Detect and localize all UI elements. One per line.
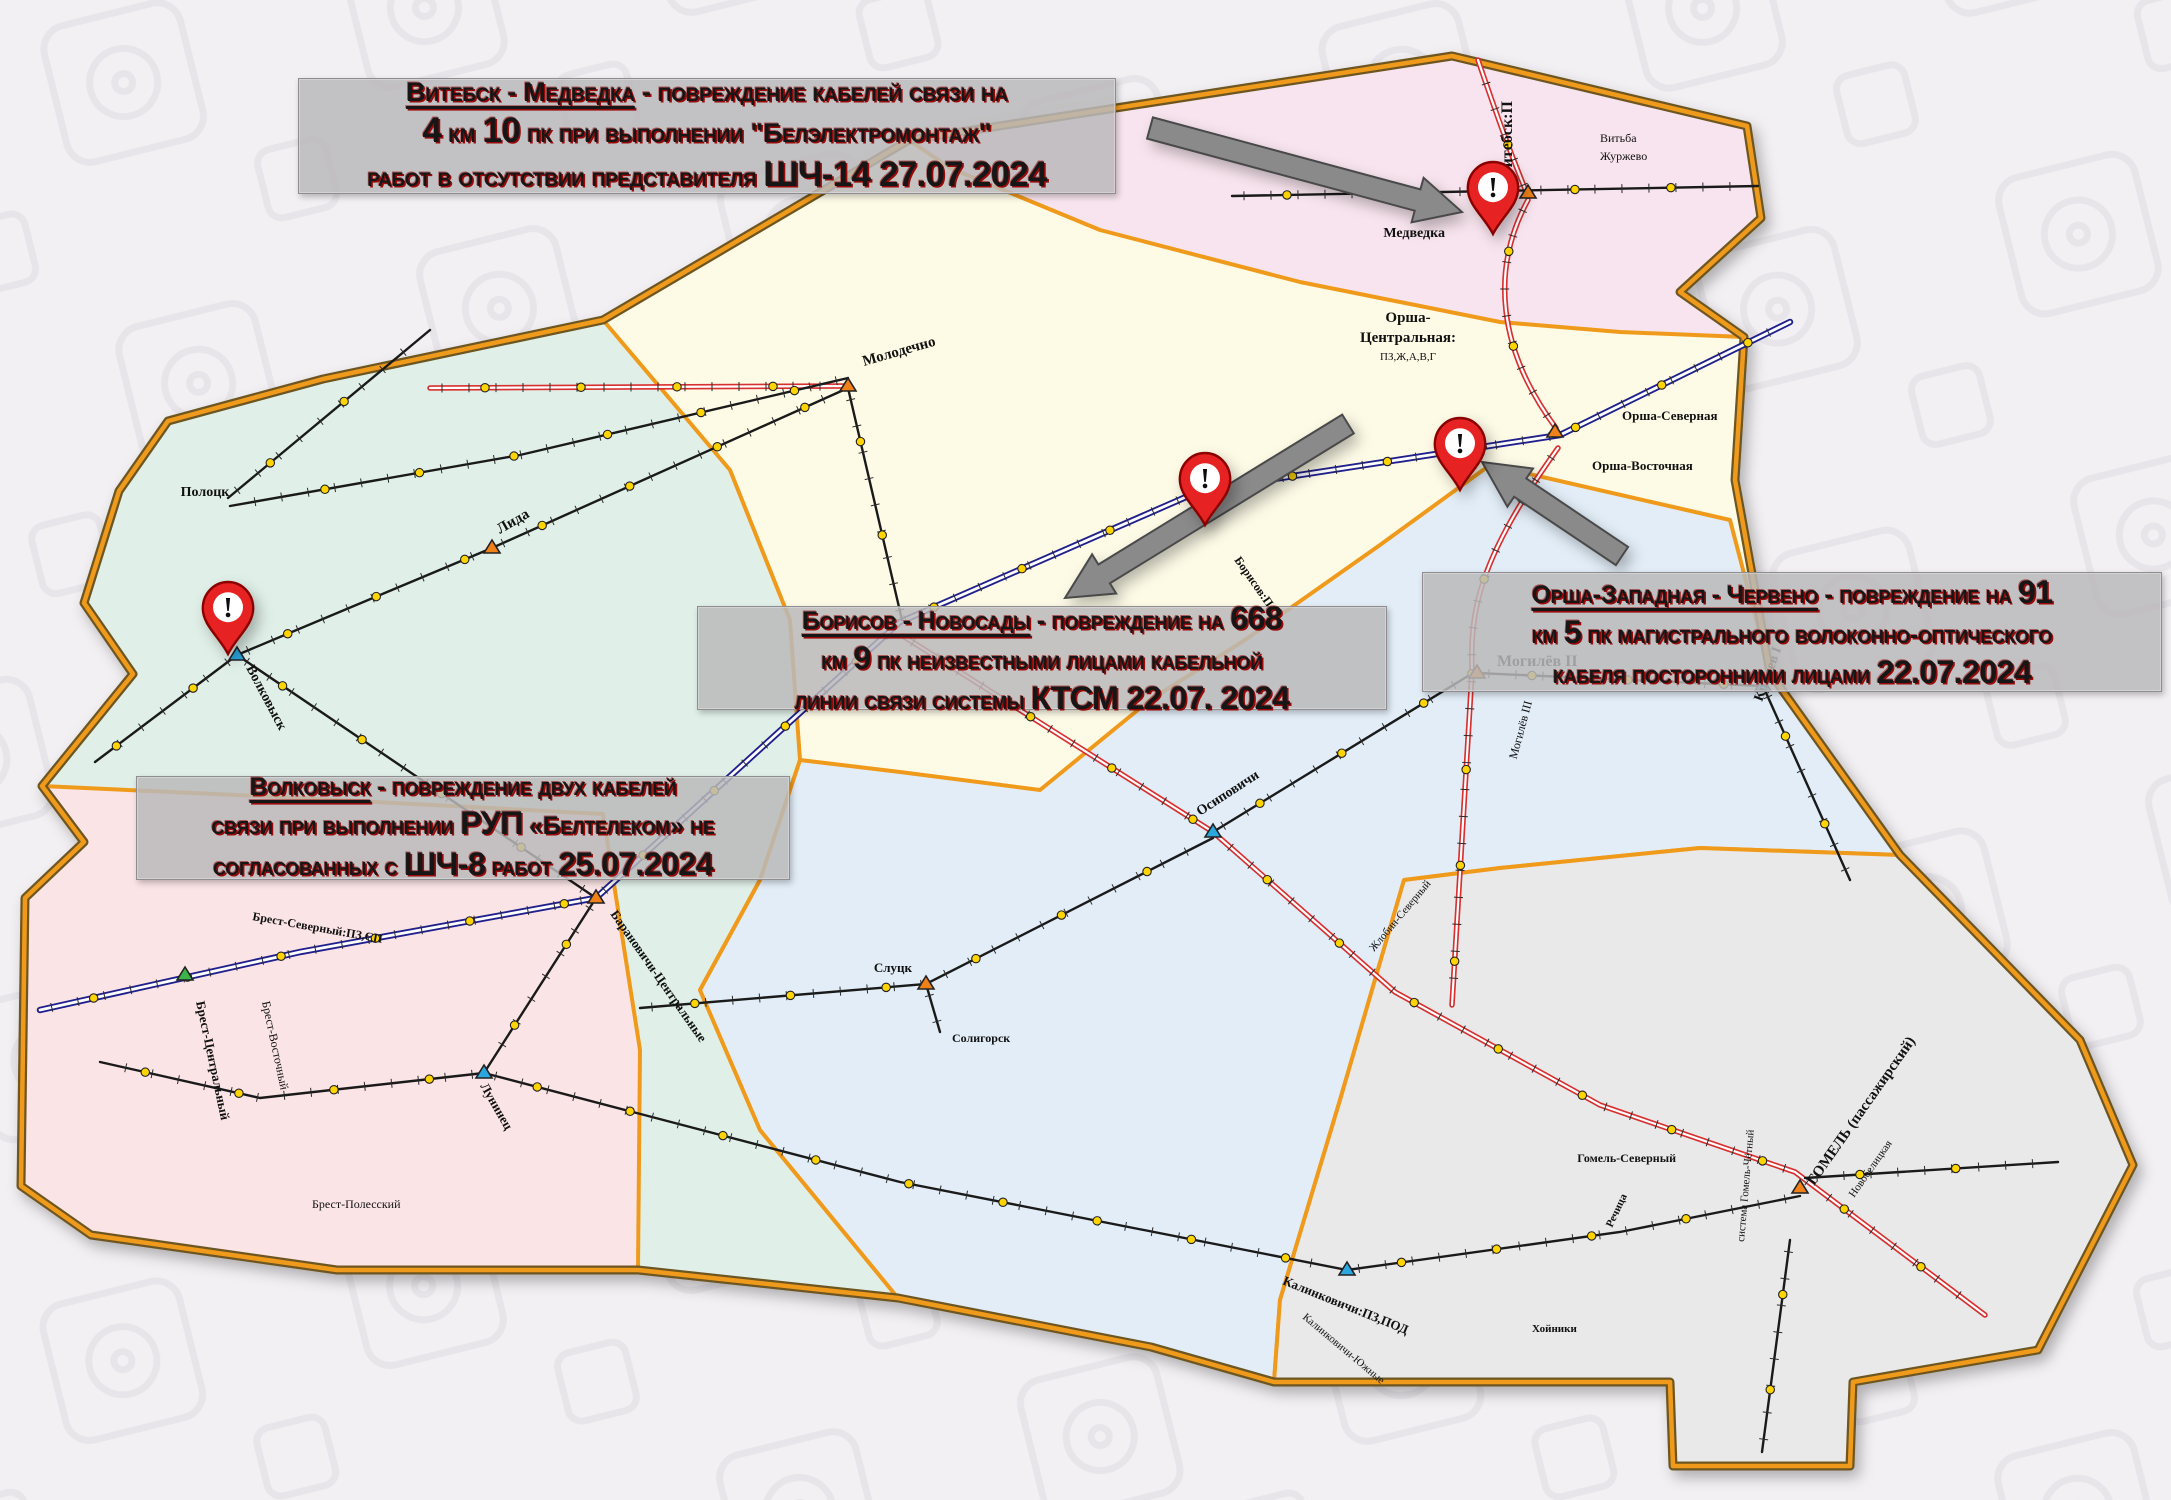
station-label: Медведка (1383, 226, 1445, 241)
stop-dot (1766, 1386, 1774, 1394)
stop-dot (1682, 1215, 1690, 1223)
station-tick (1454, 897, 1463, 898)
station-tick (1465, 708, 1474, 709)
stop-dot (425, 1075, 433, 1083)
stop-dot (801, 403, 809, 411)
station-label: ПЗ,Ж,А,В,Г (1380, 351, 1436, 363)
stop-dot (141, 1068, 149, 1076)
stop-dot (1018, 564, 1026, 572)
stop-dot (1189, 815, 1197, 823)
stop-dot (189, 684, 197, 692)
station-label: Солигорск (952, 1031, 1010, 1045)
stop-dot (277, 952, 285, 960)
station-tick (1462, 762, 1471, 763)
stop-dot (1509, 342, 1517, 350)
pin-exclamation-icon: ! (223, 592, 233, 624)
stop-dot (340, 397, 348, 405)
station-tick (1924, 1166, 1925, 1175)
station-tick (1459, 816, 1468, 817)
stop-dot (786, 991, 794, 999)
stop-dot (1758, 1157, 1766, 1165)
stop-dot (1338, 749, 1346, 757)
stop-dot (1383, 457, 1391, 465)
stop-dot (266, 459, 274, 467)
stop-dot (1571, 423, 1579, 431)
stop-dot (710, 786, 718, 794)
stop-dot (1571, 185, 1579, 193)
stop-dot (1187, 1235, 1195, 1243)
station-tick (1978, 1163, 1979, 1172)
stop-dot (1108, 764, 1116, 772)
stop-dot (713, 443, 721, 451)
stop-dot (1281, 1254, 1289, 1262)
stop-dot (673, 383, 681, 391)
station-tick (1452, 924, 1461, 925)
stop-dot (1026, 712, 1034, 720)
stop-dot (697, 408, 705, 416)
stop-dot (1143, 867, 1151, 875)
stop-dot (358, 735, 366, 743)
stop-dot (510, 1021, 518, 1029)
station-tick (1460, 789, 1469, 790)
station-tick (1457, 843, 1466, 844)
stop-dot (577, 383, 585, 391)
stop-dot (1720, 680, 1728, 688)
stop-dot (856, 437, 864, 445)
stop-dot (1335, 939, 1343, 947)
pin-exclamation-icon: ! (1200, 463, 1210, 495)
stop-dot (1494, 1045, 1502, 1053)
stop-dot (603, 430, 611, 438)
stop-dot (999, 1198, 1007, 1206)
stop-dot (1492, 1245, 1500, 1253)
stop-dot (533, 1083, 541, 1091)
stop-dot (1263, 875, 1271, 883)
stop-dot (882, 983, 890, 991)
station-label: Центральная: (1360, 330, 1456, 346)
station-tick (2032, 1159, 2033, 1168)
stop-dot (1917, 1263, 1925, 1271)
stop-dot (562, 940, 570, 948)
stop-dot (626, 1107, 634, 1115)
stop-dot (278, 682, 286, 690)
pin-exclamation-icon: ! (1488, 172, 1498, 204)
station-label: Журжево (1600, 149, 1647, 163)
station-tick (1844, 1171, 1845, 1180)
station-tick (1456, 870, 1465, 871)
stop-dot (790, 386, 798, 394)
stop-dot (878, 531, 886, 539)
stop-dot (1951, 1164, 1959, 1172)
stop-dot (945, 661, 953, 669)
stop-dot (1419, 699, 1427, 707)
railway-network-map: Витебск:ПМедведкаВитьбаЖуржевоОрша-Центр… (0, 0, 2171, 1500)
stop-dot (930, 603, 938, 611)
stop-dot (769, 382, 777, 390)
station-tick (1451, 951, 1460, 952)
stop-dot (481, 384, 489, 392)
stop-dot (235, 1089, 243, 1097)
station-label: Орша-Северная (1622, 408, 1718, 423)
stop-dot (1057, 911, 1065, 919)
station-label: Слуцк (874, 960, 913, 975)
station-label: Хойники (1532, 1323, 1577, 1335)
stop-dot (852, 657, 860, 665)
station-label: Брест-Полесский (312, 1197, 401, 1211)
stop-dot (372, 592, 380, 600)
stop-dot (1480, 575, 1488, 583)
stop-dot (781, 722, 789, 730)
stop-dot (1587, 1232, 1595, 1240)
stop-dot (89, 994, 97, 1002)
stop-dot (330, 1086, 338, 1094)
stop-dot (1462, 765, 1470, 773)
station-label: Орша- (1385, 310, 1430, 326)
station-tick (1449, 978, 1458, 979)
stop-dot (691, 999, 699, 1007)
stop-dot (466, 917, 474, 925)
station-tick (1467, 681, 1476, 682)
stop-dot (1840, 1205, 1848, 1213)
stop-dot (1821, 820, 1829, 828)
stop-dot (112, 742, 120, 750)
stop-dot (538, 521, 546, 529)
stop-dot (1397, 1258, 1405, 1266)
stop-dot (1658, 381, 1666, 389)
stop-dot (284, 630, 292, 638)
stop-dot (321, 485, 329, 493)
stop-dot (1505, 247, 1513, 255)
stop-dot (1667, 183, 1675, 191)
stop-dot (626, 482, 634, 490)
station-label: Орша-Восточная (1592, 458, 1693, 473)
station-tick (1898, 1168, 1899, 1177)
screenshot-root: Витебск:ПМедведкаВитьбаЖуржевоОрша-Центр… (0, 0, 2171, 1500)
stop-dot (1256, 799, 1264, 807)
stop-dot (972, 954, 980, 962)
stop-dot (1410, 998, 1418, 1006)
station-label: Могилёв II (1497, 653, 1578, 670)
station-tick (1464, 735, 1473, 736)
stop-dot (1106, 526, 1114, 534)
station-tick (2005, 1161, 2006, 1170)
stop-dot (1779, 1290, 1787, 1298)
stop-dot (1744, 338, 1752, 346)
stop-dot (517, 843, 525, 851)
stop-dot (415, 468, 423, 476)
station-label: Полоцк (181, 485, 231, 500)
stop-dot (1668, 1125, 1676, 1133)
stop-dot (1456, 861, 1464, 869)
stop-dot (905, 1180, 913, 1188)
stop-dot (461, 555, 469, 563)
stop-dot (812, 1156, 820, 1164)
stop-dot (639, 851, 647, 859)
station-label: Гомель-Северный (1577, 1151, 1676, 1165)
stop-dot (1283, 191, 1291, 199)
stop-dot (1093, 1217, 1101, 1225)
stop-dot (719, 1131, 727, 1139)
stop-dot (1450, 957, 1458, 965)
stop-dot (1624, 676, 1632, 684)
stop-dot (560, 900, 568, 908)
stop-dot (1781, 732, 1789, 740)
stop-dot (1578, 1091, 1586, 1099)
stop-dot (437, 789, 445, 797)
pin-exclamation-icon: ! (1455, 428, 1465, 460)
stop-dot (510, 452, 518, 460)
stop-dot (1528, 671, 1536, 679)
station-label: Витьба (1600, 131, 1637, 145)
